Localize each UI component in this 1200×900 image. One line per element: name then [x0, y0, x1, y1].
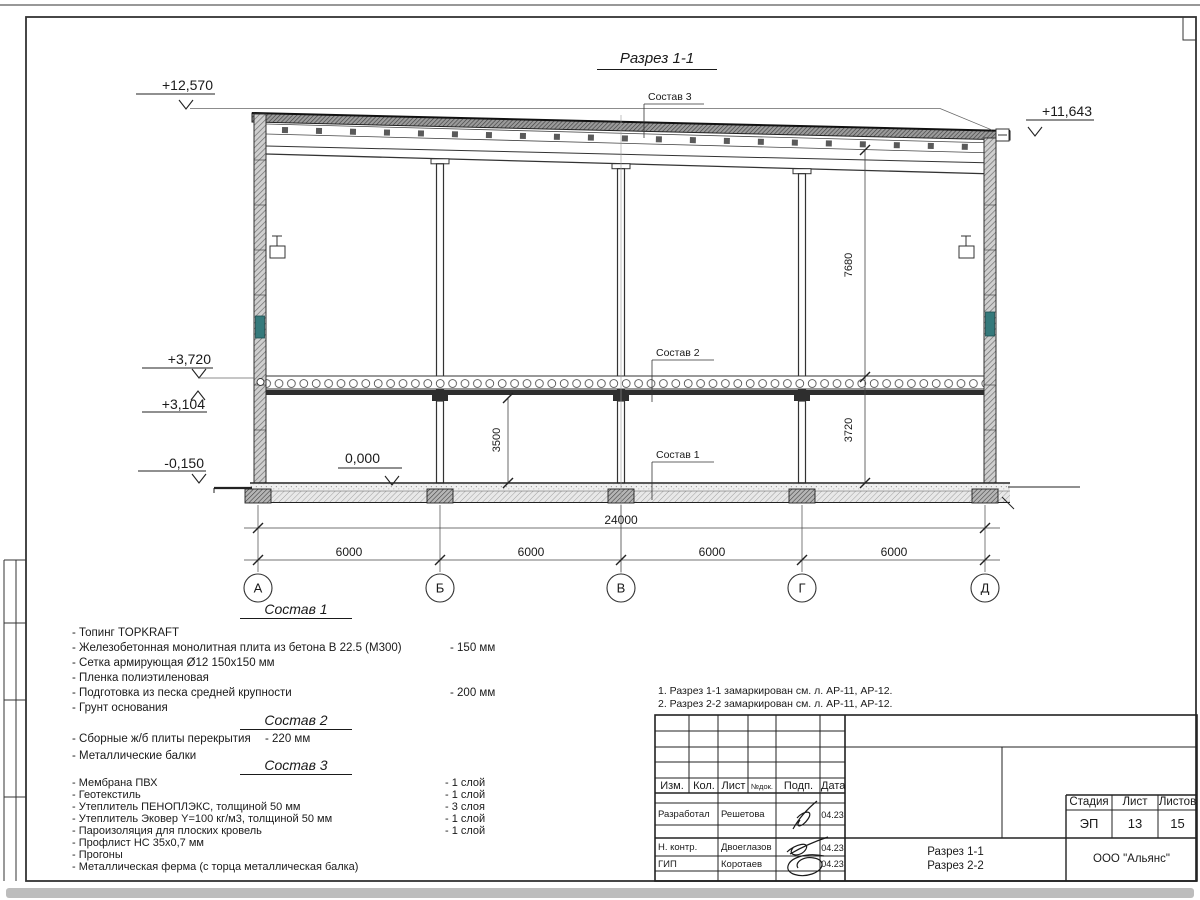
tb-col-ndok: №док. — [748, 782, 776, 791]
list-item: - Пароизоляция для плоских кровель- 1 сл… — [72, 825, 632, 837]
elevation-top-left: +12,570 — [162, 77, 213, 93]
elevation-ground: -0,150 — [164, 455, 204, 471]
note-2: 2. Разрез 2-2 замаркирован см. л. АР-11,… — [658, 698, 892, 710]
tb-stage-label: Стадия — [1066, 796, 1112, 808]
list-item: - Сборные ж/б плиты перекрытия- 220 мм — [72, 733, 632, 745]
list-item: - Железобетонная монолитная плита из бет… — [72, 642, 632, 654]
tb-role-1: Разработал — [658, 809, 710, 820]
foundation-pier — [972, 489, 998, 503]
corner-sheet-box — [1183, 17, 1196, 40]
tb-col-izm: Изм. — [656, 780, 688, 792]
axis-bubble-d: Д — [981, 581, 990, 596]
horizontal-scrollbar[interactable] — [6, 888, 1194, 898]
drawing-title: Разрез 1-1 — [597, 50, 717, 70]
note-1: 1. Разрез 1-1 замаркирован см. л. АР-11,… — [658, 685, 892, 697]
drawing-sheet: 24000 6000 6000 6000 6000 А Б В Г Д 7680… — [0, 0, 1200, 900]
axis-bubble-g: Г — [798, 581, 805, 596]
tb-company: ООО "Альянс" — [1066, 853, 1197, 865]
dim-bay-1: 6000 — [336, 545, 363, 559]
ground-slab — [214, 483, 1080, 509]
column-b-cap — [431, 159, 449, 164]
wall-axis-a — [254, 114, 266, 483]
wall-window-marker — [986, 312, 995, 336]
axis-bubble-v: В — [617, 581, 626, 596]
tb-name-1: Решетова — [721, 809, 765, 820]
column-g-cap — [793, 169, 811, 174]
tb-col-kol: Кол. — [690, 780, 718, 792]
wall-window-marker — [256, 316, 265, 338]
list-item: - Прогоны — [72, 849, 632, 861]
foundation-pier — [789, 489, 815, 503]
column-b-lower — [437, 401, 444, 483]
elevation-top-right: +11,643 — [1042, 103, 1092, 119]
composition-1-heading: Состав 1 — [240, 601, 352, 619]
tb-col-list: Лист — [719, 780, 748, 792]
column-b-upper — [437, 164, 444, 390]
axis-bubble-a: А — [254, 581, 263, 596]
dimensions-vertical: 7680 3720 3500 — [491, 145, 870, 488]
tb-doc-title: Разрез 1-1 Разрез 2-2 — [845, 845, 1066, 873]
dim-bay-3: 6000 — [699, 545, 726, 559]
list-item: - Грунт основания — [72, 702, 632, 714]
list-item: - Профлист НС 35х0,7 мм — [72, 837, 632, 849]
label-sostav2: Состав 2 — [656, 347, 700, 359]
tb-stage-value: ЭП — [1066, 816, 1112, 831]
tb-total-label: Листов — [1158, 796, 1197, 808]
dim-total: 24000 — [604, 513, 638, 527]
list-item: - Утеплитель ПЕНОПЛЭКС, толщиной 50 мм- … — [72, 801, 632, 813]
tb-name-3: Коротаев — [721, 859, 762, 870]
list-item: - Металлические балки — [72, 750, 632, 762]
floor-slab — [257, 376, 984, 401]
list-item: - Пленка полиэтиленовая — [72, 672, 632, 684]
label-sostav1: Состав 1 — [656, 449, 700, 461]
composition-2-heading: Состав 2 — [240, 712, 352, 730]
list-item: - Топинг TOPKRAFT — [72, 627, 632, 639]
list-item: - Геотекстиль- 1 слой — [72, 789, 632, 801]
dim-clear-height: 3500 — [491, 428, 503, 452]
section-drawing: 24000 6000 6000 6000 6000 А Б В Г Д 7680… — [0, 0, 1200, 900]
list-item: - Металлическая ферма (с торца металличе… — [72, 861, 632, 873]
tb-sheet-label: Лист — [1112, 796, 1158, 808]
wall-bracket-left — [270, 236, 285, 258]
tb-date-3: 04.23 — [820, 859, 845, 869]
axis-bubble-b: Б — [436, 581, 445, 596]
column-g-upper — [799, 174, 806, 390]
signature-3 — [788, 855, 824, 876]
elevation-zero: 0,000 — [345, 450, 380, 466]
tb-col-podp: Подп. — [777, 780, 820, 792]
tb-sheet-value: 13 — [1112, 816, 1158, 831]
tb-total-value: 15 — [1158, 816, 1197, 831]
tb-role-3: ГИП — [658, 859, 677, 870]
foundation-pier — [427, 489, 453, 503]
label-sostav3: Состав 3 — [648, 91, 692, 103]
list-item: - Сетка армирующая Ø12 150х150 мм — [72, 657, 632, 669]
dim-bay-4: 6000 — [881, 545, 908, 559]
roof — [252, 113, 1010, 153]
list-item: - Утеплитель Эковер Y=100 кг/м3, толщино… — [72, 813, 632, 825]
elevation-level2: +3,720 — [168, 351, 211, 367]
list-item: - Мембрана ПВХ- 1 слой — [72, 777, 632, 789]
composition-3-heading: Состав 3 — [240, 757, 352, 775]
tb-col-data: Дата — [821, 780, 845, 792]
dim-bay-2: 6000 — [518, 545, 545, 559]
dim-height-lower: 3720 — [843, 418, 855, 442]
axis-bubbles: А Б В Г Д — [244, 574, 999, 602]
tb-role-2: Н. контр. — [658, 842, 697, 853]
tb-date-2: 04.23 — [820, 843, 845, 853]
wall-axis-d — [984, 138, 996, 483]
column-g-lower — [799, 401, 806, 483]
tb-date-1: 04.23 — [820, 810, 845, 820]
elevation-beam: +3,104 — [162, 396, 205, 412]
foundation-pier — [245, 489, 271, 503]
layer-leaders: Состав 3 Состав 2 Состав 1 — [644, 91, 714, 500]
list-item: - Подготовка из песка средней крупности-… — [72, 687, 632, 699]
tb-name-2: Двоеглазов — [721, 842, 772, 853]
wall-bracket-right — [959, 236, 974, 258]
dim-height-upper: 7680 — [843, 253, 855, 277]
floor-beam — [266, 390, 984, 395]
